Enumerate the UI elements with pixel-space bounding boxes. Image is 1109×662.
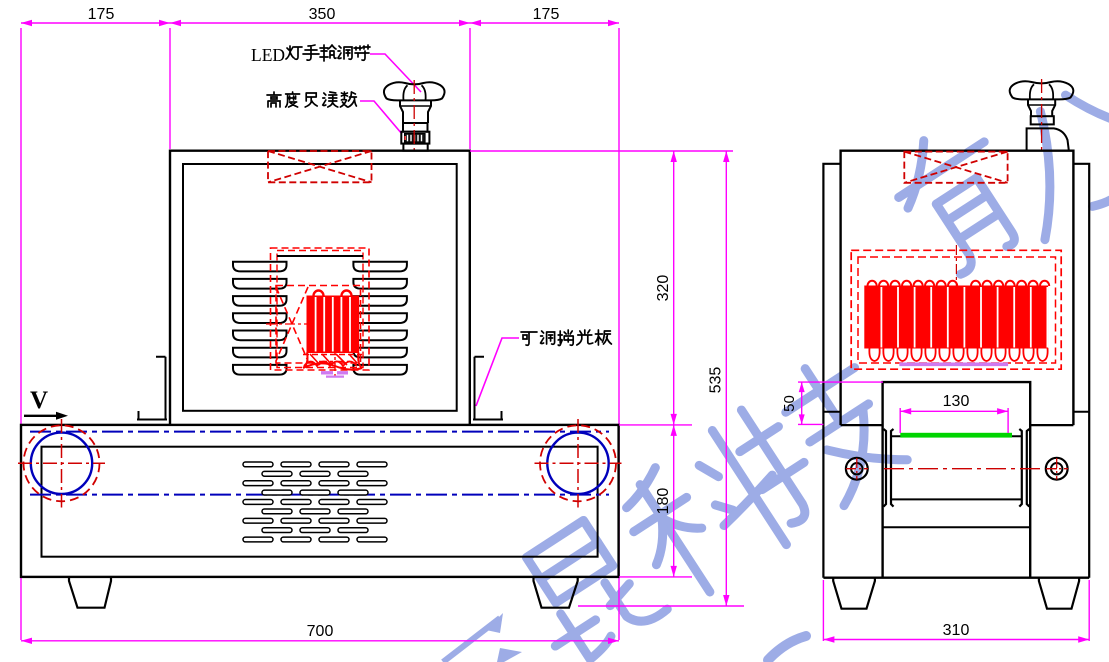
svg-text:535: 535: [708, 367, 725, 394]
svg-text:130: 130: [943, 393, 970, 410]
svg-text:175: 175: [88, 6, 115, 23]
svg-text:700: 700: [307, 623, 334, 640]
svg-text:V: V: [30, 387, 48, 414]
svg-text:LED: LED: [251, 45, 285, 65]
svg-text:350: 350: [309, 6, 336, 23]
svg-text:180: 180: [655, 488, 672, 515]
svg-text:320: 320: [655, 275, 672, 302]
svg-text:50: 50: [781, 395, 798, 412]
svg-text:310: 310: [943, 622, 970, 639]
svg-text:175: 175: [533, 6, 560, 23]
